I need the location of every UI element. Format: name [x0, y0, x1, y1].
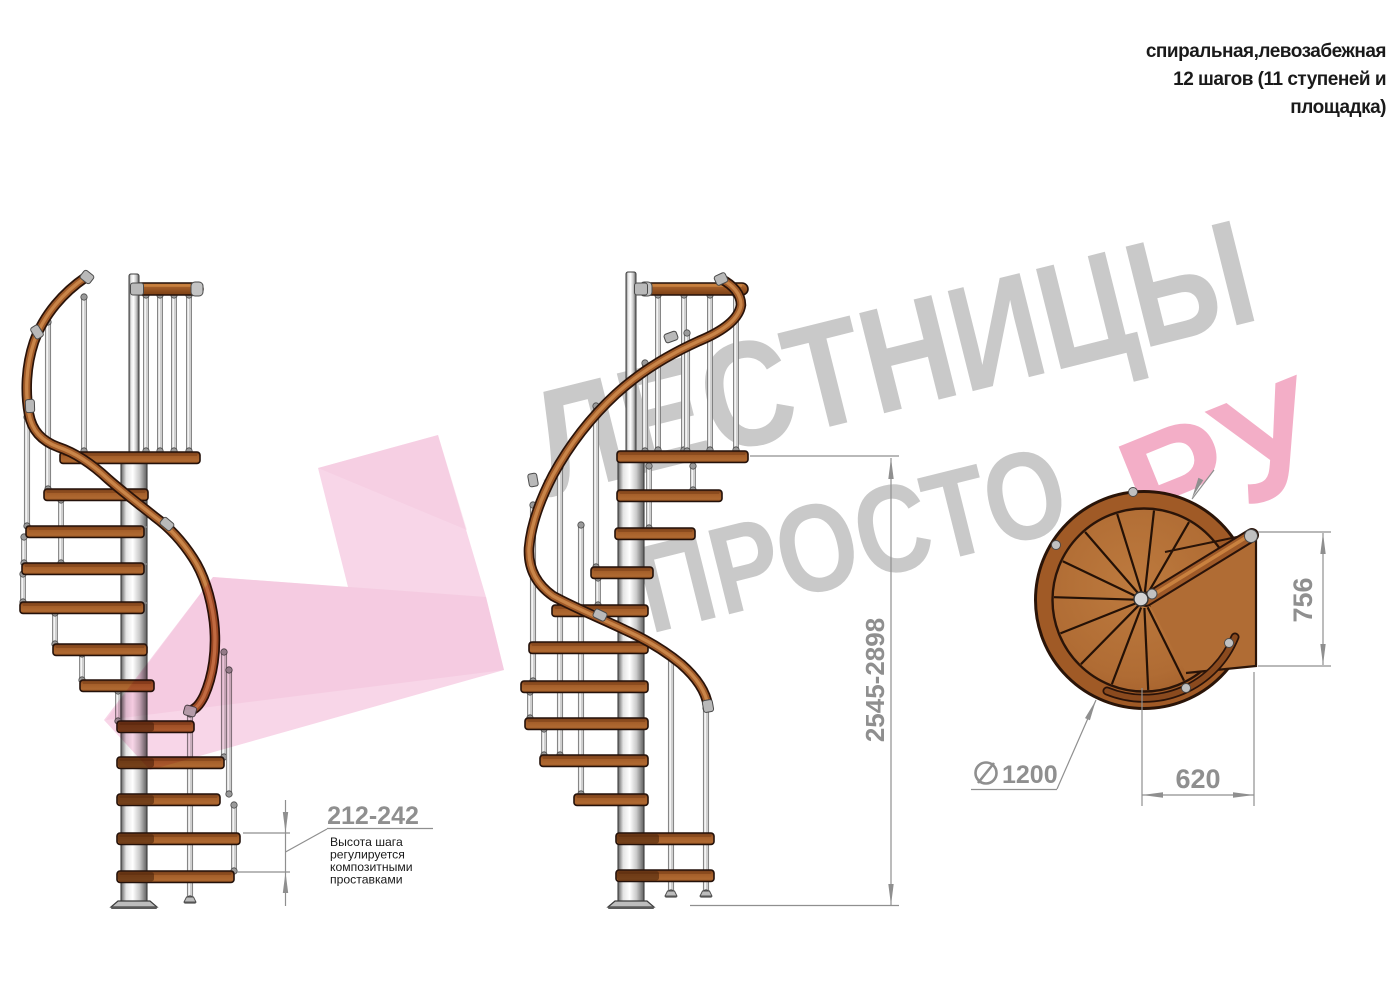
svg-text:1200: 1200	[1002, 761, 1058, 789]
svg-text:площадка): площадка)	[1290, 97, 1386, 118]
svg-text:спиральная,левозабежная: спиральная,левозабежная	[1146, 41, 1386, 62]
svg-text:620: 620	[1175, 764, 1220, 794]
svg-text:проставками: проставками	[330, 873, 403, 887]
svg-text:756: 756	[1288, 577, 1318, 622]
svg-text:2545-2898: 2545-2898	[860, 618, 890, 742]
svg-text:212-242: 212-242	[327, 802, 419, 830]
svg-text:12 шагов (11 ступеней и: 12 шагов (11 ступеней и	[1173, 69, 1386, 90]
